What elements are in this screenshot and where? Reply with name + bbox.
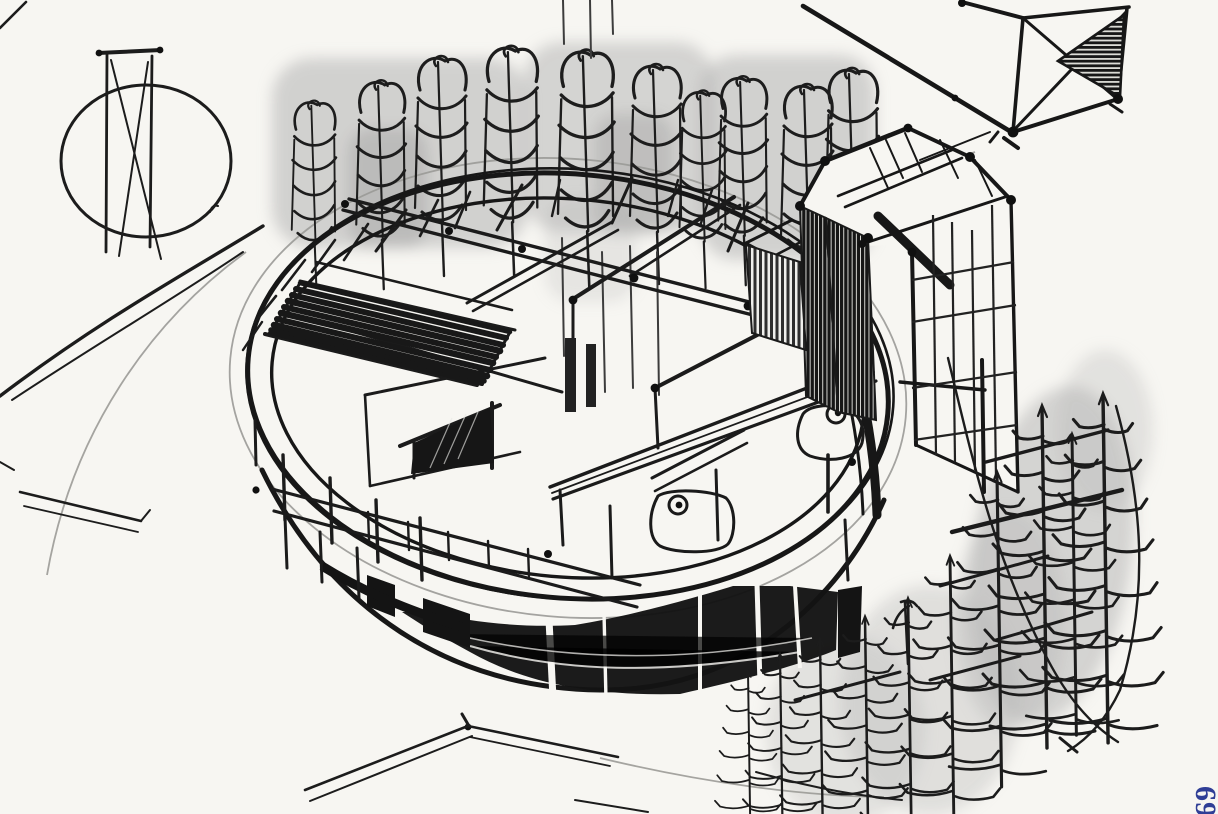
- svg-text:69: 69: [1189, 786, 1218, 814]
